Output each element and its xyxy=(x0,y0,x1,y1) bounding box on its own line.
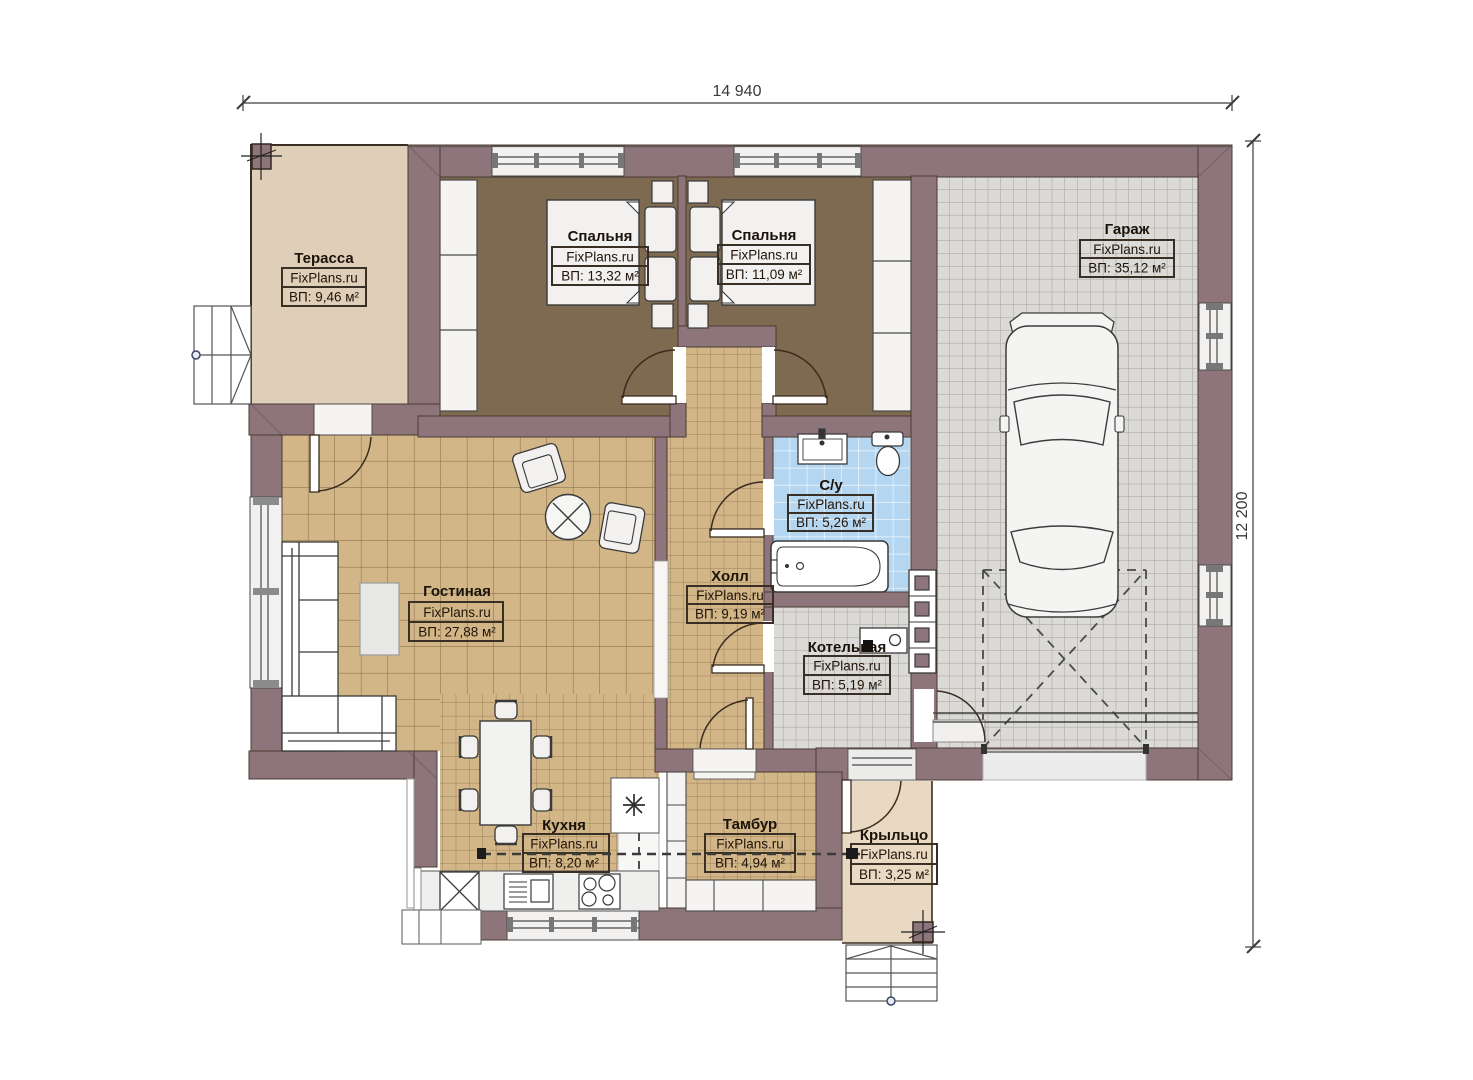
svg-text:ВП: 5,19 м²: ВП: 5,19 м² xyxy=(812,678,883,693)
svg-text:FixPlans.ru: FixPlans.ru xyxy=(290,271,358,286)
svg-text:ВП: 8,20 м²: ВП: 8,20 м² xyxy=(529,856,600,871)
svg-text:ВП: 35,12 м²: ВП: 35,12 м² xyxy=(1088,261,1166,276)
svg-text:Крыльцо: Крыльцо xyxy=(860,827,928,844)
svg-text:Котельная: Котельная xyxy=(808,639,887,656)
svg-text:ВП: 9,46 м²: ВП: 9,46 м² xyxy=(289,290,360,305)
svg-text:FixPlans.ru: FixPlans.ru xyxy=(813,659,881,674)
svg-text:Гараж: Гараж xyxy=(1105,221,1150,238)
svg-text:Спальня: Спальня xyxy=(568,228,633,245)
svg-text:14 940: 14 940 xyxy=(713,83,762,100)
svg-text:Спальня: Спальня xyxy=(732,227,797,244)
svg-text:Кухня: Кухня xyxy=(542,817,586,834)
svg-text:ВП: 4,94 м²: ВП: 4,94 м² xyxy=(715,856,786,871)
svg-text:Терасса: Терасса xyxy=(294,250,354,267)
svg-text:Тамбур: Тамбур xyxy=(723,816,777,833)
svg-text:Холл: Холл xyxy=(711,568,749,585)
svg-text:12 200: 12 200 xyxy=(1234,491,1251,540)
svg-text:ВП: 11,09 м²: ВП: 11,09 м² xyxy=(726,267,803,282)
svg-text:FixPlans.ru: FixPlans.ru xyxy=(566,250,634,265)
svg-text:FixPlans.ru: FixPlans.ru xyxy=(860,847,928,862)
svg-text:ВП: 27,88 м²: ВП: 27,88 м² xyxy=(418,625,496,640)
svg-text:FixPlans.ru: FixPlans.ru xyxy=(797,497,865,512)
svg-text:FixPlans.ru: FixPlans.ru xyxy=(696,588,764,603)
svg-text:ВП: 5,26 м²: ВП: 5,26 м² xyxy=(796,515,867,530)
svg-text:С/у: С/у xyxy=(819,477,843,494)
svg-text:FixPlans.ru: FixPlans.ru xyxy=(730,248,798,263)
svg-text:ВП: 9,19 м²: ВП: 9,19 м² xyxy=(695,607,766,622)
svg-text:FixPlans.ru: FixPlans.ru xyxy=(530,837,598,852)
svg-text:Гостиная: Гостиная xyxy=(423,583,491,600)
svg-text:ВП: 13,32 м²: ВП: 13,32 м² xyxy=(561,269,639,284)
svg-text:FixPlans.ru: FixPlans.ru xyxy=(423,605,491,620)
svg-text:FixPlans.ru: FixPlans.ru xyxy=(716,837,784,852)
svg-text:ВП: 3,25 м²: ВП: 3,25 м² xyxy=(859,867,930,882)
svg-text:FixPlans.ru: FixPlans.ru xyxy=(1093,242,1161,257)
